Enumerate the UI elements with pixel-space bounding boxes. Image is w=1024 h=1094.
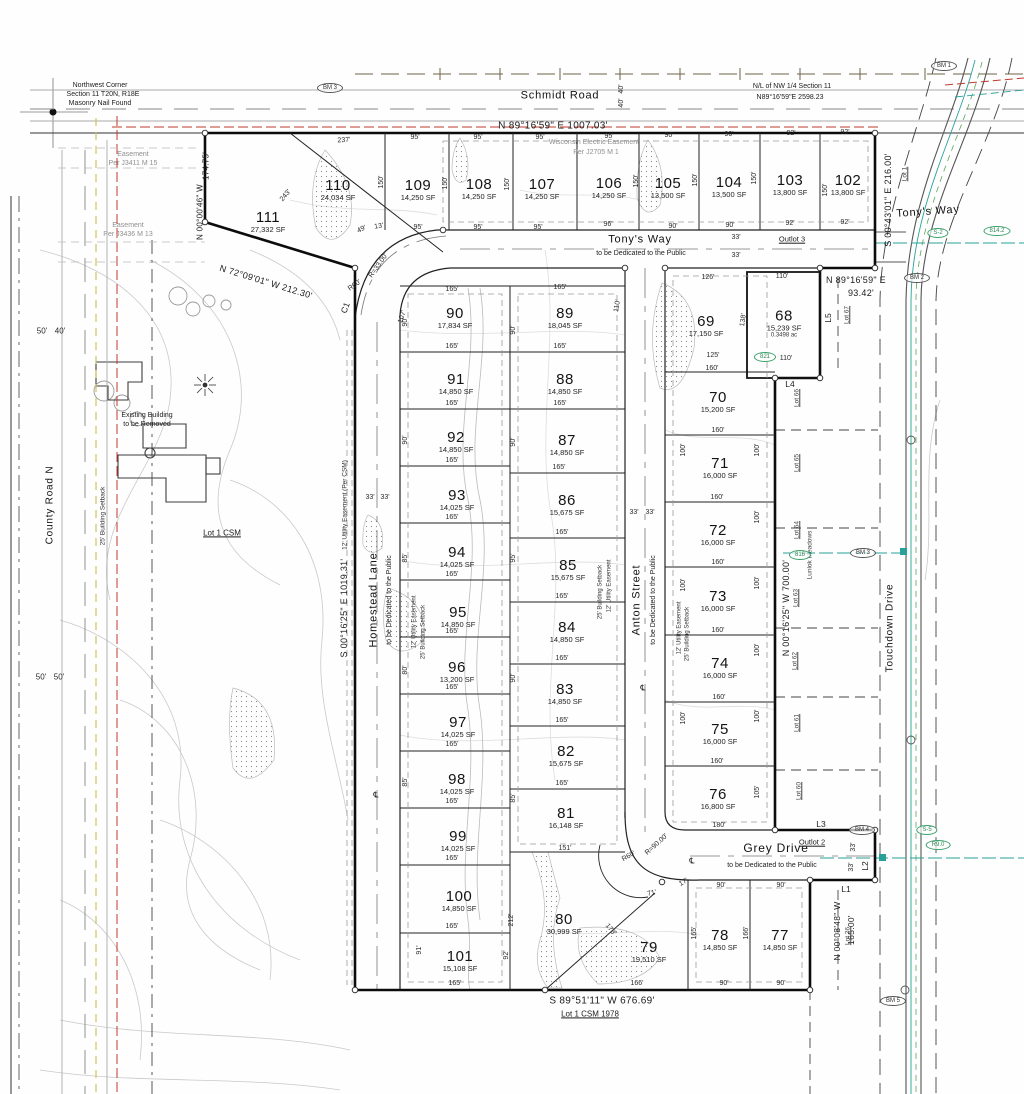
lot-95: 9514,850 SF: [441, 605, 476, 629]
lot-70: 7015,200 SF: [701, 390, 736, 414]
dim-label: 95': [535, 134, 544, 142]
benchmark-bm3-top: BM 3: [317, 83, 343, 93]
street-schmidt-road: Schmidt Road: [521, 90, 600, 103]
dim-label: 150': [633, 174, 641, 187]
dim-label: 165': [445, 457, 458, 465]
dim-label: 92': [503, 950, 511, 959]
adjacent-lot-60: Lot 60: [795, 782, 802, 800]
dim-label: 90': [510, 325, 518, 334]
bearing-east-column: N 00°16'25" W 700.00': [781, 560, 791, 657]
dim-label: 165': [555, 717, 568, 725]
dim-label: 165': [445, 923, 458, 931]
dim-label: 33': [731, 234, 740, 242]
line-label-l2: L2: [861, 861, 871, 870]
street-anton-street: Anton Street: [631, 565, 644, 636]
dim-label: 80': [402, 665, 410, 674]
anton-dedication: to be Dedicated to the Public: [650, 555, 658, 645]
lot-71: 7116,000 SF: [703, 456, 738, 480]
dim-label: 40': [55, 326, 65, 335]
adjacent-lot-66: Lot 66: [793, 389, 800, 407]
tonys-way-dedication: to be Dedicated to the Public: [596, 250, 686, 258]
lot-72: 7216,000 SF: [701, 523, 736, 547]
lot-76: 7616,800 SF: [701, 787, 736, 811]
dim-label: 150': [751, 171, 759, 184]
lot-93: 9314,025 SF: [440, 488, 475, 512]
dim-label: 126': [701, 274, 714, 282]
lot-105: 10513,500 SF: [651, 176, 686, 200]
dim-label: 33': [850, 842, 858, 851]
dim-label: 40': [618, 98, 626, 107]
outlot3-label: Outlot 3: [779, 236, 805, 245]
dim-label: 40': [618, 84, 626, 93]
dim-label: 165': [555, 529, 568, 537]
dim-label: 180': [712, 822, 725, 830]
section-line-note-2: N89°16'59"E 2598.23: [757, 94, 824, 102]
lot-86: 8615,675 SF: [550, 493, 585, 517]
wisconsin-easement-note-1: Wisconsin Electric Easement: [549, 139, 639, 147]
lot-74: 7416,000 SF: [703, 656, 738, 680]
dim-label: 90': [776, 980, 785, 988]
dim-label: 160': [711, 627, 724, 635]
lot-107: 10714,250 SF: [525, 177, 560, 201]
dim-label: 33': [645, 509, 654, 517]
benchmark-bm3: BM 3: [850, 548, 876, 558]
lot-97: 9714,025 SF: [441, 715, 476, 739]
lot-98: 9814,025 SF: [440, 772, 475, 796]
dim-label: 95': [473, 134, 482, 142]
lot-103: 10313,800 SF: [773, 173, 808, 197]
lot-100: 10014,850 SF: [442, 889, 477, 913]
dim-label: 50': [37, 326, 47, 335]
dim-label: 150': [504, 177, 512, 190]
utility-easement-label-2: 12' Utility Easement: [607, 560, 614, 613]
lot-73: 7316,000 SF: [701, 589, 736, 613]
dim-label: 165': [553, 343, 566, 351]
dim-label: 90': [664, 132, 673, 140]
existing-buildings: [96, 362, 220, 502]
county-road-lines: [11, 116, 205, 1094]
dim-label: 90': [510, 673, 518, 682]
dim-label: 90': [510, 437, 518, 446]
dim-label: 165': [445, 855, 458, 863]
dim-label: 165': [445, 798, 458, 806]
bearing-west-line: S 00°16'25" E 1019.31': [339, 559, 349, 658]
dim-label: 165': [553, 284, 566, 292]
dim-label: 13': [374, 222, 384, 232]
sun-symbol: [194, 374, 216, 396]
dim-label: 165': [555, 593, 568, 601]
building-setback-label-2: 25' Building Setback: [598, 565, 605, 619]
dim-label: 165': [445, 286, 458, 294]
dim-label: 90': [402, 317, 410, 326]
dim-label: 165': [553, 400, 566, 408]
dim-label: 96': [603, 221, 612, 229]
lot-92: 9214,850 SF: [439, 430, 474, 454]
lot-99: 9914,025 SF: [441, 829, 476, 853]
dim-label: 95': [604, 133, 613, 141]
existing-building-note-1: Existing Building: [121, 412, 172, 420]
lot-104: 10413,500 SF: [712, 175, 747, 199]
dim-label: 160': [710, 494, 723, 502]
dim-label: 100': [680, 711, 688, 724]
lot-78: 7814,850 SF: [703, 928, 738, 952]
dim-label: 165': [445, 343, 458, 351]
lot-111: 11127,332 SF: [251, 210, 286, 234]
outlot2-label: Outlot 2: [799, 839, 825, 848]
centerline-symbol-anton: ℄: [640, 683, 645, 692]
dim-label: 95': [410, 134, 419, 142]
dim-label: 100': [754, 443, 762, 456]
dim-label: 95': [533, 224, 542, 232]
section-line-note-1: N/L of NW 1/4 Section 11: [753, 83, 831, 91]
dim-label: 151': [558, 845, 571, 853]
lot-79: 7919,510 SF: [632, 940, 667, 964]
dim-label: 85': [402, 777, 410, 786]
contour-lines: [40, 250, 940, 1090]
lot-69: 6917,150 SF: [689, 314, 724, 338]
dim-label: 165': [445, 400, 458, 408]
road-edges: [355, 230, 875, 990]
lot-101: 10115,108 SF: [443, 949, 478, 973]
dim-label: 150': [442, 176, 450, 189]
bearing-lot68-2: 93.42': [848, 288, 874, 298]
lot-80: 8030,999 SF: [547, 912, 582, 936]
lot-109: 10914,250 SF: [401, 178, 436, 202]
street-tonys-way: Tony's Way: [608, 234, 671, 247]
bearing-lot68-1: N 89°16'59" E: [826, 275, 886, 285]
lot-89: 8918,045 SF: [548, 306, 583, 330]
lot-75: 7516,000 SF: [703, 722, 738, 746]
easement-note1-1: Easement: [117, 151, 149, 159]
dim-label: 165': [691, 926, 699, 939]
adjacent-lot-26: Lot 26: [844, 927, 851, 945]
adjacent-lot-64: Lot 64: [793, 521, 800, 539]
dim-label: 100': [680, 443, 688, 456]
dim-label: 165': [445, 571, 458, 579]
street-homestead-lane: Homestead Lane: [368, 553, 381, 648]
lot-106: 10614,250 SF: [592, 176, 627, 200]
dim-label: 165': [555, 655, 568, 663]
dim-label: 110': [780, 355, 793, 363]
dim-label: 33': [380, 494, 389, 502]
dim-label: 100': [754, 643, 762, 656]
dim-label: 33': [731, 252, 740, 260]
easement-note2-1: Easement: [112, 222, 144, 230]
building-setback-label-3: 25' Building Setback: [685, 607, 692, 661]
homestead-dedication: to be Dedicated to the Public: [386, 555, 394, 645]
dim-label: 90': [668, 223, 677, 231]
dim-label: 95': [510, 553, 518, 562]
street-county-road-n: County Road N: [44, 466, 56, 545]
utility-easement-label-3: 12' Utility Easement: [677, 602, 684, 655]
dim-label: 166': [630, 980, 643, 988]
dim-label: 92': [840, 129, 849, 137]
dim-label: 92': [840, 219, 849, 227]
lot1-csm-label: Lot 1 CSM: [203, 528, 241, 537]
utility-marker-821: 821: [754, 352, 776, 362]
line-label-l5: L5: [824, 313, 834, 322]
centerline-symbol-homestead: ℄: [373, 790, 378, 799]
dim-label: 90': [716, 882, 725, 890]
road-centerlines: [361, 236, 875, 990]
easement-note2-2: Per J3436 M 13: [103, 231, 152, 239]
bearing-south-line: S 89°51'11" W 676.69': [549, 995, 654, 1007]
lot-68: 6815,239 SF0.3498 ac: [767, 309, 802, 340]
lot-91: 9114,850 SF: [439, 372, 474, 396]
dim-label: 165': [445, 514, 458, 522]
bearing-west-upper-dist: 174.75': [201, 152, 210, 180]
line-label-l1: L1: [841, 885, 850, 895]
dim-label: 165': [445, 741, 458, 749]
nw-corner-note-1: Northwest Corner: [73, 82, 128, 90]
lot-110: 11024,034 SF: [321, 178, 356, 202]
adjacent-lot-61: Lot 61: [793, 714, 800, 732]
lot-87: 8714,850 SF: [550, 433, 585, 457]
benchmark-bm2: BM 2: [904, 273, 930, 283]
dim-label: 92': [785, 220, 794, 228]
dim-label: 160': [712, 694, 725, 702]
lot-90: 9017,834 SF: [438, 306, 473, 330]
dim-label: 100': [754, 510, 762, 523]
lot-94: 9414,025 SF: [440, 545, 475, 569]
dim-label: 212': [508, 913, 516, 926]
benchmark-bm1: BM 1: [931, 61, 957, 71]
bearing-lot77-east: N 00°08'48" W: [833, 901, 843, 960]
benchmark-bm5: BM 5: [880, 996, 906, 1006]
line-label-l3: L3: [816, 820, 825, 830]
adjacent-lot-67: Lot 67: [843, 306, 850, 324]
line-label-l4: L4: [785, 380, 794, 390]
easement-note1-2: Per J3411 M 15: [109, 160, 158, 168]
utility-marker-814: 814.2: [983, 226, 1010, 236]
building-setback-label-1: 25' Building Setback: [421, 605, 428, 659]
dim-label: 150': [692, 173, 700, 186]
dim-label: 90': [719, 980, 728, 988]
lot-102: 10213,800 SF: [831, 173, 866, 197]
adjacent-lot1-label: Lot 1: [901, 167, 908, 181]
dim-label: 160': [711, 559, 724, 567]
lot-84: 8414,850 SF: [550, 620, 585, 644]
utility-easement-label-1: 12' Utility Easement: [412, 596, 419, 649]
nw-corner-note-3: Masonry Nail Found: [69, 100, 132, 108]
dim-label: 85': [402, 553, 410, 562]
dim-label: 92': [786, 130, 795, 138]
benchmark-bm4: BM 4: [849, 825, 875, 835]
grey-dedication: to be Dedicated to the Public: [727, 862, 817, 870]
dim-label: 150': [378, 175, 386, 188]
centerline-symbol-grey: ℄: [689, 856, 694, 865]
plat-map: Northwest Corner Section 11 T20N, R18E M…: [0, 0, 1024, 1094]
lot-108: 10814,250 SF: [462, 177, 497, 201]
street-touchdown-drive: Touchdown Drive: [884, 584, 896, 673]
dim-label: 100': [754, 576, 762, 589]
bearing-west-upper: N 00°00'46" W: [195, 184, 204, 240]
adjacent-lot-62: Lot 62: [791, 652, 798, 670]
dim-label: 237': [337, 137, 350, 146]
dim-label: 90': [776, 882, 785, 890]
dim-label: 125': [706, 352, 719, 360]
lot-83: 8314,850 SF: [548, 682, 583, 706]
dim-label: 95': [473, 224, 482, 232]
lot-77: 7714,850 SF: [763, 928, 798, 952]
bearing-east-upper: S 00°43'01" E 216.00': [883, 153, 893, 247]
lot-81: 8116,148 SF: [549, 806, 584, 830]
dim-label: 91': [416, 945, 424, 954]
dim-label: 90': [402, 435, 410, 444]
dim-label: 160': [705, 365, 718, 373]
building-setback-label-county: 25' Building Setback: [99, 487, 106, 546]
dim-label: 165': [445, 684, 458, 692]
dim-label: 160': [711, 427, 724, 435]
lot1-csm-1978-label: Lot 1 CSM 1978: [561, 1009, 619, 1018]
lot-88: 8814,850 SF: [548, 372, 583, 396]
utility-marker-r90: R9.0: [926, 840, 951, 850]
lot-96: 9613,200 SF: [440, 660, 475, 684]
dim-label: 105': [754, 785, 762, 798]
contours-in-lots: [290, 190, 775, 935]
dim-label: 160': [710, 758, 723, 766]
existing-building-note-2: to be Removed: [123, 421, 170, 429]
dim-label: 165': [552, 464, 565, 472]
lot-85: 8515,675 SF: [551, 558, 586, 582]
dim-label: 33': [629, 509, 638, 517]
dim-label: 95': [413, 224, 422, 232]
nw-corner-note-2: Section 11 T20N, R18E: [67, 91, 140, 99]
dim-label: 100': [680, 578, 688, 591]
dim-label: 90': [725, 222, 734, 230]
dim-label: 33': [848, 862, 856, 871]
adjacent-lot-65: Lot 65: [793, 454, 800, 472]
dim-label: 110': [776, 273, 789, 281]
dim-label: 165': [445, 628, 458, 636]
wisconsin-easement-note-2: Per J2705 M 1: [573, 149, 619, 157]
dim-label: 165': [555, 780, 568, 788]
dim-label: 166': [743, 926, 751, 939]
adjacent-lot-63: Lot 63: [792, 589, 799, 607]
dim-label: 33': [365, 494, 374, 502]
utility-easement-csm-label: 12' Utility Easement (Per CSM): [341, 460, 348, 550]
utility-marker-816: 816: [789, 550, 811, 560]
dim-label: 50': [54, 672, 64, 681]
dim-label: 50': [36, 672, 46, 681]
lot-82: 8215,675 SF: [549, 744, 584, 768]
dim-label: 150': [822, 183, 830, 196]
dim-label: 85': [510, 793, 518, 802]
bearing-north-line: N 89°16'59" E 1007.03': [498, 120, 608, 132]
dim-label: 165': [448, 980, 461, 988]
dim-label: 90': [724, 131, 733, 139]
dim-label: 100': [754, 709, 762, 722]
